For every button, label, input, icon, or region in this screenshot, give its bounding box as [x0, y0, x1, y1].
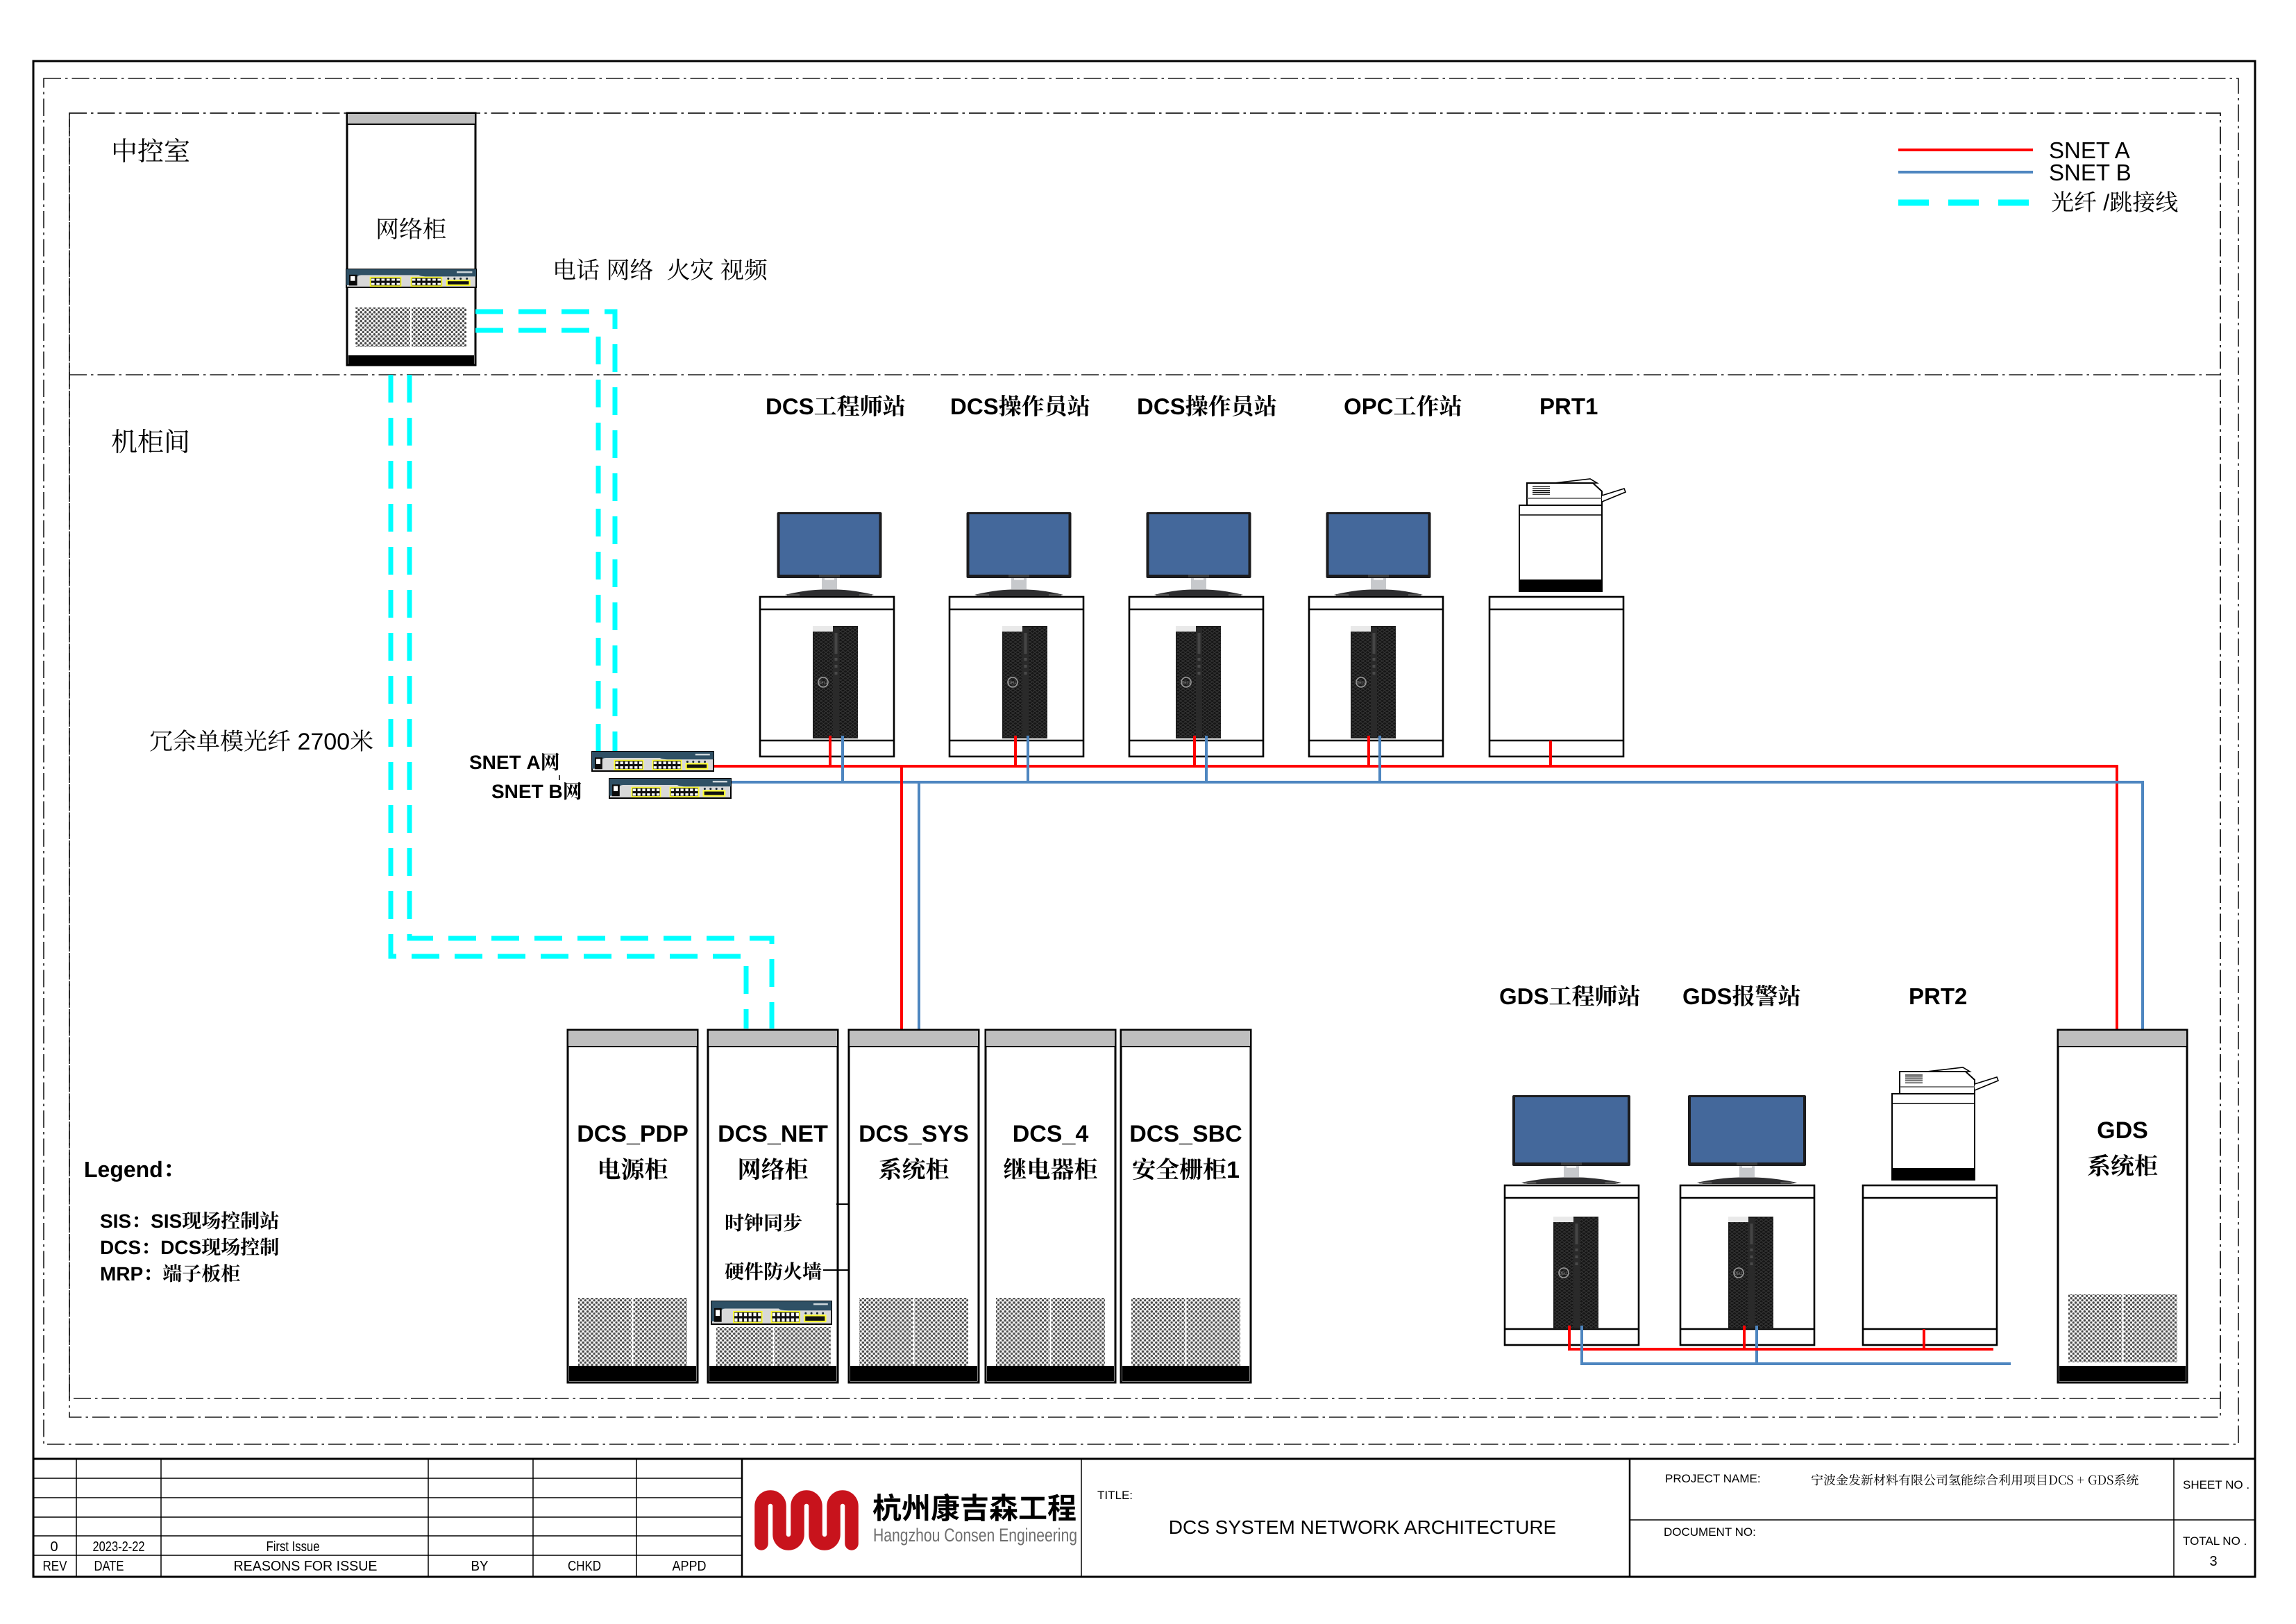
- svg-text:Hangzhou Consen Engineering: Hangzhou Consen Engineering: [873, 1525, 1077, 1546]
- svg-text:DOCUMENT NO:: DOCUMENT NO:: [1664, 1525, 1756, 1539]
- svg-text:APPD: APPD: [673, 1559, 707, 1574]
- svg-text:DCS_PDP: DCS_PDP: [577, 1121, 689, 1147]
- svg-text:3: 3: [2209, 1554, 2217, 1569]
- svg-text:BY: BY: [471, 1559, 489, 1574]
- svg-text:0: 0: [50, 1539, 58, 1555]
- svg-text:DELL: DELL: [1008, 682, 1018, 686]
- svg-text:DELL: DELL: [1357, 682, 1366, 686]
- svg-text:PRT1: PRT1: [1539, 394, 1598, 419]
- svg-text:REASONS FOR ISSUE: REASONS FOR ISSUE: [234, 1559, 378, 1574]
- svg-text:DELL: DELL: [1182, 682, 1191, 686]
- svg-text:DCS_SYS: DCS_SYS: [859, 1121, 969, 1147]
- svg-text:SNET B: SNET B: [2049, 160, 2132, 185]
- svg-text:DELL: DELL: [1734, 1272, 1744, 1276]
- svg-text:SHEET NO .: SHEET NO .: [2183, 1478, 2249, 1491]
- svg-text:DCS_NET: DCS_NET: [718, 1121, 828, 1147]
- svg-text:GDS: GDS: [2097, 1117, 2148, 1144]
- svg-text:CHKD: CHKD: [568, 1559, 601, 1574]
- svg-text:2023-2-22: 2023-2-22: [93, 1539, 145, 1555]
- svg-text:PRT2: PRT2: [1909, 983, 1967, 1009]
- svg-text:First Issue: First Issue: [267, 1539, 320, 1555]
- svg-text:DCS SYSTEM NETWORK ARCHITECTUR: DCS SYSTEM NETWORK ARCHITECTURE: [1169, 1516, 1556, 1538]
- svg-text:DCS_SBC: DCS_SBC: [1129, 1121, 1242, 1147]
- svg-text:TITLE:: TITLE:: [1097, 1489, 1133, 1502]
- svg-text:DCS_4: DCS_4: [1013, 1121, 1089, 1147]
- svg-text:DELL: DELL: [1560, 1272, 1569, 1276]
- svg-text:REV: REV: [43, 1559, 68, 1574]
- svg-text:DATE: DATE: [94, 1559, 124, 1574]
- svg-text:TOTAL NO .: TOTAL NO .: [2183, 1534, 2247, 1548]
- svg-text:PROJECT NAME:: PROJECT NAME:: [1665, 1472, 1761, 1485]
- svg-text:DELL: DELL: [819, 682, 828, 686]
